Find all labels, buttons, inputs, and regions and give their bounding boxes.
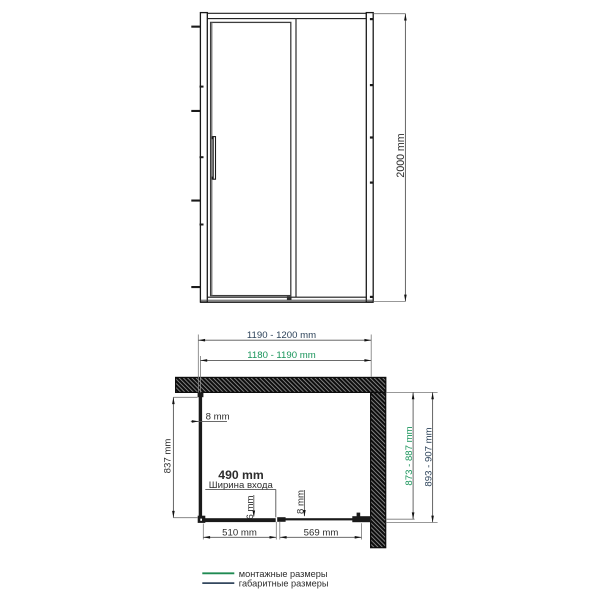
svg-text:893 - 907 mm: 893 - 907 mm — [424, 427, 435, 486]
svg-text:837 mm: 837 mm — [163, 439, 174, 474]
svg-text:569 mm: 569 mm — [304, 527, 339, 538]
svg-text:1180 - 1190 mm: 1180 - 1190 mm — [247, 350, 315, 361]
svg-text:8 mm: 8 mm — [296, 490, 307, 514]
svg-text:1190 - 1200 mm: 1190 - 1200 mm — [247, 330, 316, 341]
svg-text:монтажные размеры: монтажные размеры — [239, 569, 328, 579]
svg-text:6 mm: 6 mm — [245, 495, 256, 519]
svg-text:510 mm: 510 mm — [222, 527, 257, 538]
svg-text:873 - 887 mm: 873 - 887 mm — [404, 426, 415, 485]
svg-text:2000 mm: 2000 mm — [395, 133, 407, 177]
svg-text:габаритные размеры: габаритные размеры — [239, 579, 329, 589]
